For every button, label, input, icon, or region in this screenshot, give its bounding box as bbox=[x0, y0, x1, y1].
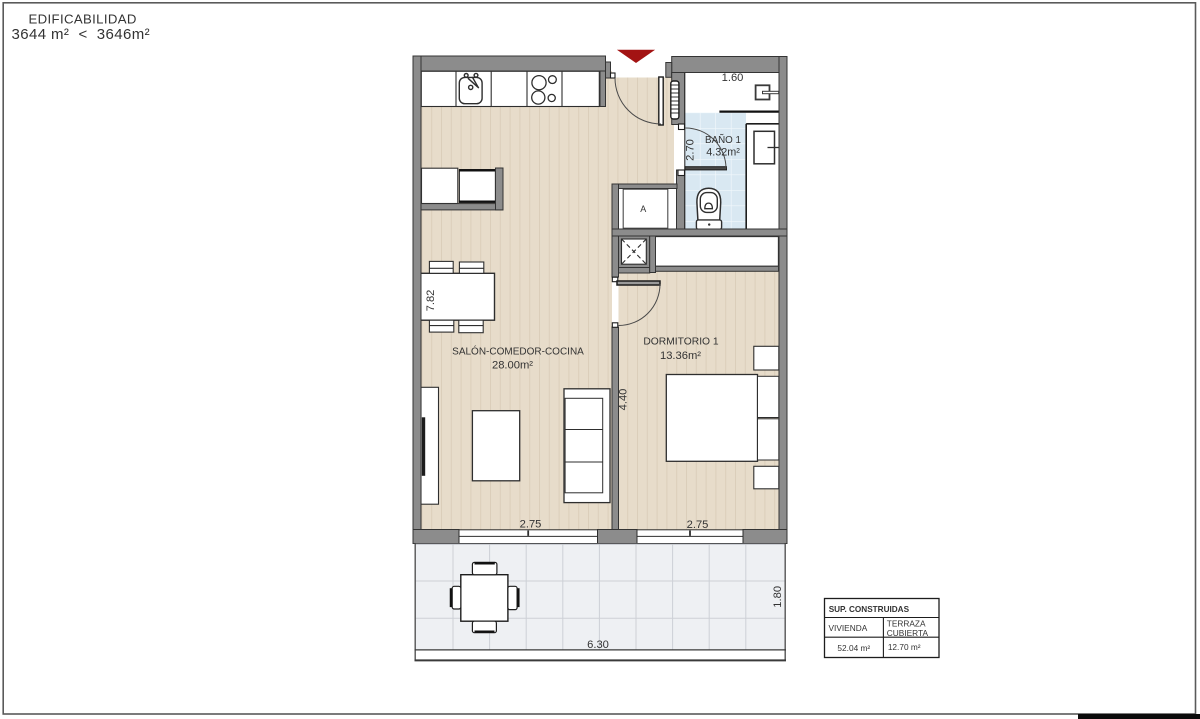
svg-text:A: A bbox=[640, 204, 646, 214]
svg-text:13.36m²: 13.36m² bbox=[660, 350, 701, 362]
svg-text:SUP. CONSTRUIDAS: SUP. CONSTRUIDAS bbox=[829, 605, 910, 614]
svg-text:4.32m²: 4.32m² bbox=[706, 147, 740, 159]
svg-text:EDIFICABILIDAD: EDIFICABILIDAD bbox=[29, 12, 137, 27]
svg-text:2.70: 2.70 bbox=[685, 139, 697, 161]
svg-text:3644 m² < 3646m²: 3644 m² < 3646m² bbox=[12, 26, 151, 43]
svg-text:TERRAZA: TERRAZA bbox=[887, 619, 926, 629]
svg-text:VIVIENDA: VIVIENDA bbox=[829, 623, 868, 633]
svg-text:6.30: 6.30 bbox=[587, 639, 609, 651]
svg-text:CUBIERTA: CUBIERTA bbox=[887, 628, 929, 638]
svg-text:52.04 m²: 52.04 m² bbox=[837, 643, 870, 653]
svg-text:28.00m²: 28.00m² bbox=[492, 360, 533, 372]
svg-text:2.75: 2.75 bbox=[520, 519, 542, 531]
svg-text:1.60: 1.60 bbox=[722, 72, 744, 84]
svg-text:7.82: 7.82 bbox=[425, 290, 437, 312]
svg-text:DORMITORIO 1: DORMITORIO 1 bbox=[643, 337, 719, 348]
svg-text:BAÑO 1: BAÑO 1 bbox=[705, 135, 741, 146]
svg-text:4.40: 4.40 bbox=[618, 389, 630, 411]
svg-text:SALÓN-COMEDOR-COCINA: SALÓN-COMEDOR-COCINA bbox=[452, 344, 584, 357]
svg-text:2.75: 2.75 bbox=[687, 519, 709, 531]
svg-text:12.70 m²: 12.70 m² bbox=[888, 642, 921, 652]
svg-text:1.80: 1.80 bbox=[772, 586, 784, 608]
